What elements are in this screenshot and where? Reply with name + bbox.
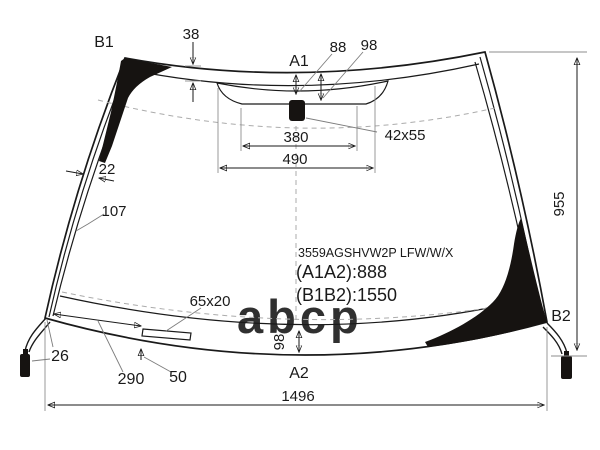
dim-380-label: 380 <box>283 129 308 146</box>
windshield-diagram-page: abcp <box>0 0 600 450</box>
dim-107-label: 107 <box>101 203 126 220</box>
span-b1b2: (B1B2):1550 <box>296 285 397 305</box>
dim-42x55-label: 42x55 <box>385 127 426 144</box>
sensor-pad <box>289 100 305 121</box>
point-b1-label: B1 <box>94 34 114 51</box>
dim-26-label: 26 <box>51 348 69 365</box>
dim-955-label: 955 <box>551 191 568 216</box>
part-code: 3559AGSHVW2P LFW/W/X <box>298 246 454 260</box>
span-a1a2: (A1A2):888 <box>296 262 387 282</box>
dim-98-bottom-label: 98 <box>271 334 288 351</box>
dim-490-label: 490 <box>282 151 307 168</box>
dim-98-top-label: 98 <box>361 37 378 54</box>
dim-38-label: 38 <box>183 26 200 43</box>
point-a2-label: A2 <box>289 365 309 382</box>
left-connector <box>20 318 50 377</box>
dim-65x20-label: 65x20 <box>190 293 231 310</box>
dim-290-label: 290 <box>118 371 145 388</box>
windshield-diagram: abcp <box>0 0 600 450</box>
dim-50-label: 50 <box>169 369 187 386</box>
dim-22-label: 22 <box>99 161 116 178</box>
dim-88-label: 88 <box>330 39 347 56</box>
point-b2-label: B2 <box>551 308 571 325</box>
point-a1-label: A1 <box>289 53 309 70</box>
dim-1496-label: 1496 <box>281 388 314 405</box>
